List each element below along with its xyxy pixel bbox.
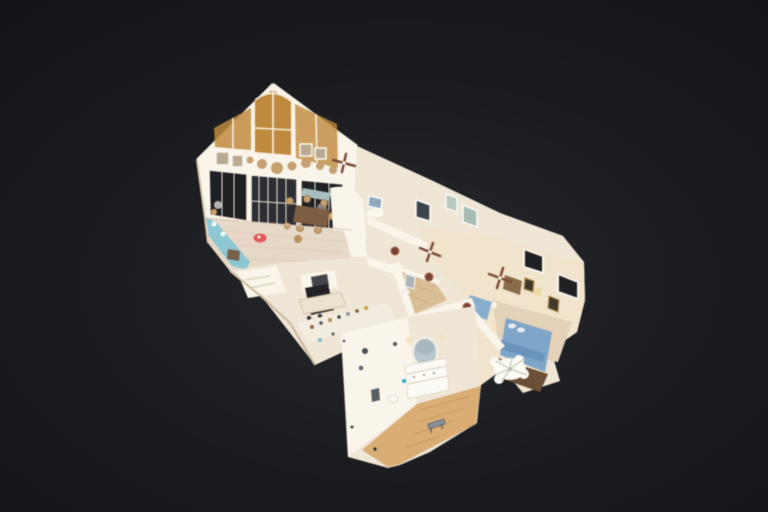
- wreath: [391, 247, 399, 255]
- great-room[interactable]: [197, 84, 367, 271]
- fan-hub: [428, 250, 432, 254]
- sconce-glow: [406, 337, 412, 343]
- sconce-glow: [439, 334, 445, 340]
- decor-object: [211, 209, 217, 215]
- chair: [321, 200, 328, 207]
- medallion: [247, 157, 254, 164]
- chandelier-arm: [494, 374, 504, 384]
- drawer-knob: [433, 372, 435, 374]
- loft-landing[interactable]: [357, 146, 433, 227]
- clutter: [331, 332, 334, 335]
- medallion: [257, 159, 267, 169]
- pillow: [517, 328, 525, 333]
- door-knob: [343, 340, 345, 342]
- pet-figure: [284, 223, 291, 230]
- dark-fixture: [362, 348, 368, 354]
- clutter: [328, 318, 332, 322]
- medallion: [271, 162, 283, 174]
- dollhouse-model[interactable]: [0, 0, 768, 512]
- lamp-shade: [534, 288, 542, 296]
- drawer-knob: [423, 374, 425, 376]
- clutter: [319, 321, 323, 325]
- clutter: [310, 325, 314, 329]
- blue-artwork: [368, 196, 382, 209]
- chair: [287, 198, 294, 205]
- door-knob: [373, 447, 376, 450]
- bathroom[interactable]: [341, 306, 481, 467]
- clutter: [346, 312, 350, 316]
- clutter: [318, 338, 322, 342]
- medallion: [301, 158, 311, 168]
- towel: [371, 388, 380, 402]
- viewer-canvas[interactable]: [0, 0, 768, 512]
- console-table: [400, 289, 410, 295]
- wreath: [425, 273, 433, 281]
- pillow: [508, 324, 516, 329]
- fan-hub: [498, 276, 502, 280]
- gold-framed-art: [524, 278, 534, 292]
- dark-fixture: [359, 366, 364, 371]
- pet-figure: [294, 235, 302, 243]
- nightstand: [491, 302, 497, 308]
- door-knob: [351, 426, 354, 429]
- medallion: [316, 162, 324, 170]
- white-daybed: [366, 209, 384, 218]
- marker-dot: [258, 236, 261, 239]
- hall-mirror: [405, 274, 415, 289]
- dark-fixture: [393, 342, 397, 346]
- window-reflection: [214, 201, 222, 209]
- picture-frame: [216, 152, 229, 165]
- clutter: [364, 306, 368, 310]
- chair: [304, 196, 311, 203]
- mirror-reflection: [416, 340, 434, 355]
- blue-cup: [402, 379, 406, 383]
- picture-frame: [232, 155, 243, 167]
- picture-frame: [315, 148, 326, 159]
- medallion: [329, 166, 337, 174]
- picture-frame: [300, 144, 312, 156]
- clutter: [355, 309, 359, 313]
- medallion: [288, 162, 297, 171]
- drawer-knob: [413, 376, 415, 378]
- toilet: [388, 395, 398, 403]
- side-table: [227, 249, 240, 261]
- pillow: [221, 232, 226, 237]
- fan-hub: [342, 161, 346, 165]
- chandelier-hub: [508, 367, 512, 371]
- clutter: [337, 315, 341, 319]
- pillow: [212, 222, 217, 227]
